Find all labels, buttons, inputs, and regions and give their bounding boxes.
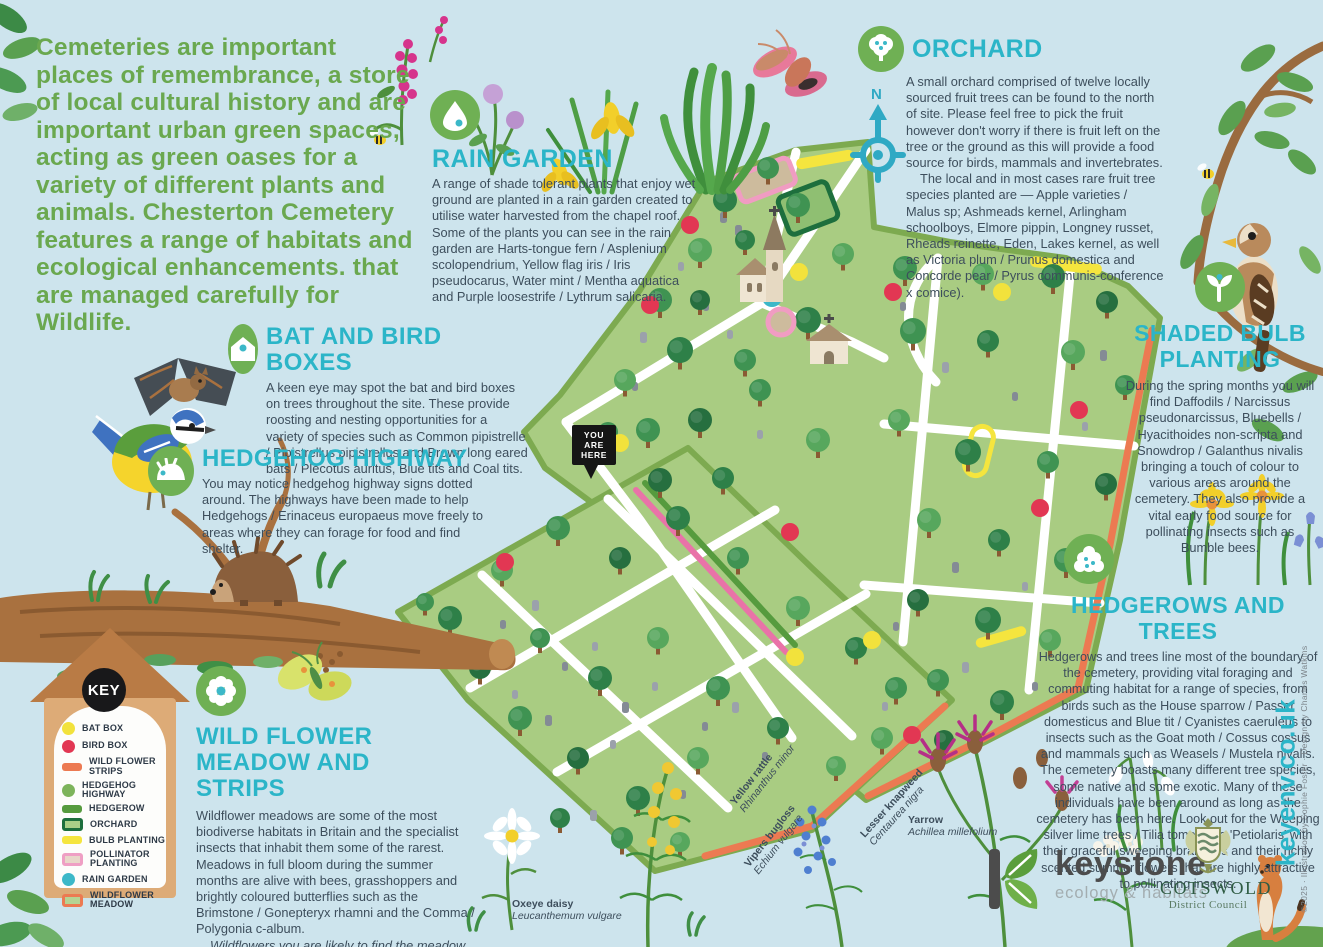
key-row: HEDGEROW — [62, 804, 166, 814]
key-label: WILD FLOWER STRIPS — [89, 757, 166, 776]
you-are-here-marker: YOU ARE HERE — [572, 425, 616, 465]
key-label: BIRD BOX — [82, 741, 128, 751]
hedgerows-trees-title: HEDGEROWS AND TREES — [1036, 592, 1320, 644]
shaded-bulb-title: SHADED BULB PLANTING — [1124, 320, 1316, 372]
key-label: RAIN GARDEN — [82, 875, 148, 885]
cotswold-crest-icon — [1182, 816, 1234, 878]
keystone-logo-icon — [985, 845, 1043, 913]
wildflower-meadow-swatch — [62, 894, 83, 907]
bulb-planting-swatch — [62, 836, 82, 844]
cemetery-wildlife-poster: Cemeteries are important places of remem… — [0, 0, 1323, 947]
hedgerow-swatch — [62, 805, 82, 813]
cotswold-logo: COTSWOLD District Council — [1160, 816, 1256, 911]
bee-icon — [1196, 162, 1214, 179]
wildflower-meadow-title: WILD FLOWER MEADOW AND STRIPS — [196, 724, 426, 802]
you-are-here-label: YOU ARE HERE — [581, 430, 607, 460]
key-label: POLLINATOR PLANTING — [90, 850, 166, 869]
website-vertical: keyenv.co.uk — [1271, 648, 1302, 918]
rain-garden-swatch — [62, 873, 75, 886]
plant-name: Yarrow — [908, 814, 997, 826]
bat-illustration — [134, 358, 236, 416]
orchard-swatch — [62, 818, 83, 831]
rain-garden-body: A range of shade tolerant plants that en… — [432, 176, 702, 306]
plant-latin: Leucanthemum vulgare — [512, 910, 622, 922]
cotswold-subtitle: District Council — [1160, 899, 1256, 911]
hedgehog-icon — [148, 446, 194, 496]
hedgehog-highway-title: HEDGEHOG HIGHWAY — [202, 446, 488, 472]
rain-garden-title: RAIN GARDEN — [432, 146, 702, 172]
key-row: BULB PLANTING — [62, 836, 166, 846]
key-row: ORCHARD — [62, 818, 166, 831]
key-row: POLLINATOR PLANTING — [62, 850, 166, 869]
key-label: HEDGEROW — [89, 804, 145, 814]
section-rain-garden: RAIN GARDEN A range of shade tolerant pl… — [424, 90, 702, 306]
key-label: ORCHARD — [90, 820, 137, 830]
orchard-icon — [858, 26, 904, 72]
key-row: RAIN GARDEN — [62, 873, 166, 886]
key-items-list: BAT BOX BIRD BOX WILD FLOWER STRIPS HEDG… — [62, 722, 166, 910]
section-wildflower-meadow: WILD FLOWER MEADOW AND STRIPS Wildflower… — [196, 666, 484, 947]
bird-box-swatch — [62, 740, 75, 753]
plant-name: Oxeye daisy — [512, 898, 622, 910]
plant-label-oxeye-daisy: Oxeye daisy Leucanthemum vulgare — [512, 898, 622, 922]
orchard-title: ORCHARD — [912, 36, 1043, 62]
key-row: BAT BOX — [62, 722, 166, 735]
key-row: HEDGEHOG HIGHWAY — [62, 781, 166, 800]
section-orchard: ORCHARD A small orchard comprised of twe… — [858, 26, 1164, 301]
key-label: BULB PLANTING — [89, 836, 165, 846]
pollinator-circle-marker — [768, 309, 794, 335]
key-row: BIRD BOX — [62, 740, 166, 753]
bat-box-swatch — [62, 722, 75, 735]
key-label: BAT BOX — [82, 724, 123, 734]
section-hedgehog-highway: HEDGEHOG HIGHWAY You may notice hedgehog… — [148, 446, 488, 557]
section-shaded-bulb: SHADED BULB PLANTING During the spring m… — [1124, 262, 1316, 556]
key-row: WILD FLOWER STRIPS — [62, 757, 166, 776]
key-title: KEY — [88, 682, 120, 699]
wildflower-body-p2: Wildflowers you are likely to find the m… — [196, 938, 478, 947]
wildflower-icon — [196, 666, 246, 716]
bulb-planting-icon — [1195, 262, 1245, 312]
hedgehog-highway-swatch — [62, 784, 75, 797]
wildflower-strips-swatch — [62, 763, 82, 771]
hedgehog-highway-body: You may notice hedgehog highway signs do… — [202, 476, 488, 557]
key-title-badge: KEY — [82, 668, 126, 712]
cotswold-name: COTSWOLD — [1160, 878, 1256, 899]
moth-illustration — [748, 30, 830, 102]
orchard-body-p1: A small orchard comprised of twelve loca… — [906, 74, 1164, 171]
rain-garden-icon — [430, 90, 480, 140]
credit-vertical: ©2025 · Illustration by Sophie Foster · … — [1299, 634, 1309, 924]
key-label: HEDGEHOG HIGHWAY — [82, 781, 166, 800]
pollinator-planting-swatch — [62, 853, 83, 866]
wildflower-body-p1: Wildflower meadows are some of the most … — [196, 808, 478, 938]
key-label: WILDFLOWER MEADOW — [90, 891, 166, 910]
plant-label-yarrow: Yarrow Achillea millefolium — [908, 814, 997, 838]
shaded-bulb-body: During the spring months you will find D… — [1124, 378, 1316, 556]
hedgerow-icon — [1064, 534, 1114, 584]
intro-paragraph: Cemeteries are important places of remem… — [36, 34, 420, 337]
bat-bird-boxes-title: BAT AND BIRD BOXES — [266, 324, 528, 376]
wildflower-meadow-body: Wildflower meadows are some of the most … — [196, 808, 478, 947]
plant-latin: Achillea millefolium — [908, 826, 997, 838]
compass-north-label: N — [871, 86, 882, 103]
bird-box-icon — [228, 324, 258, 374]
key-row: WILDFLOWER MEADOW — [62, 891, 166, 910]
